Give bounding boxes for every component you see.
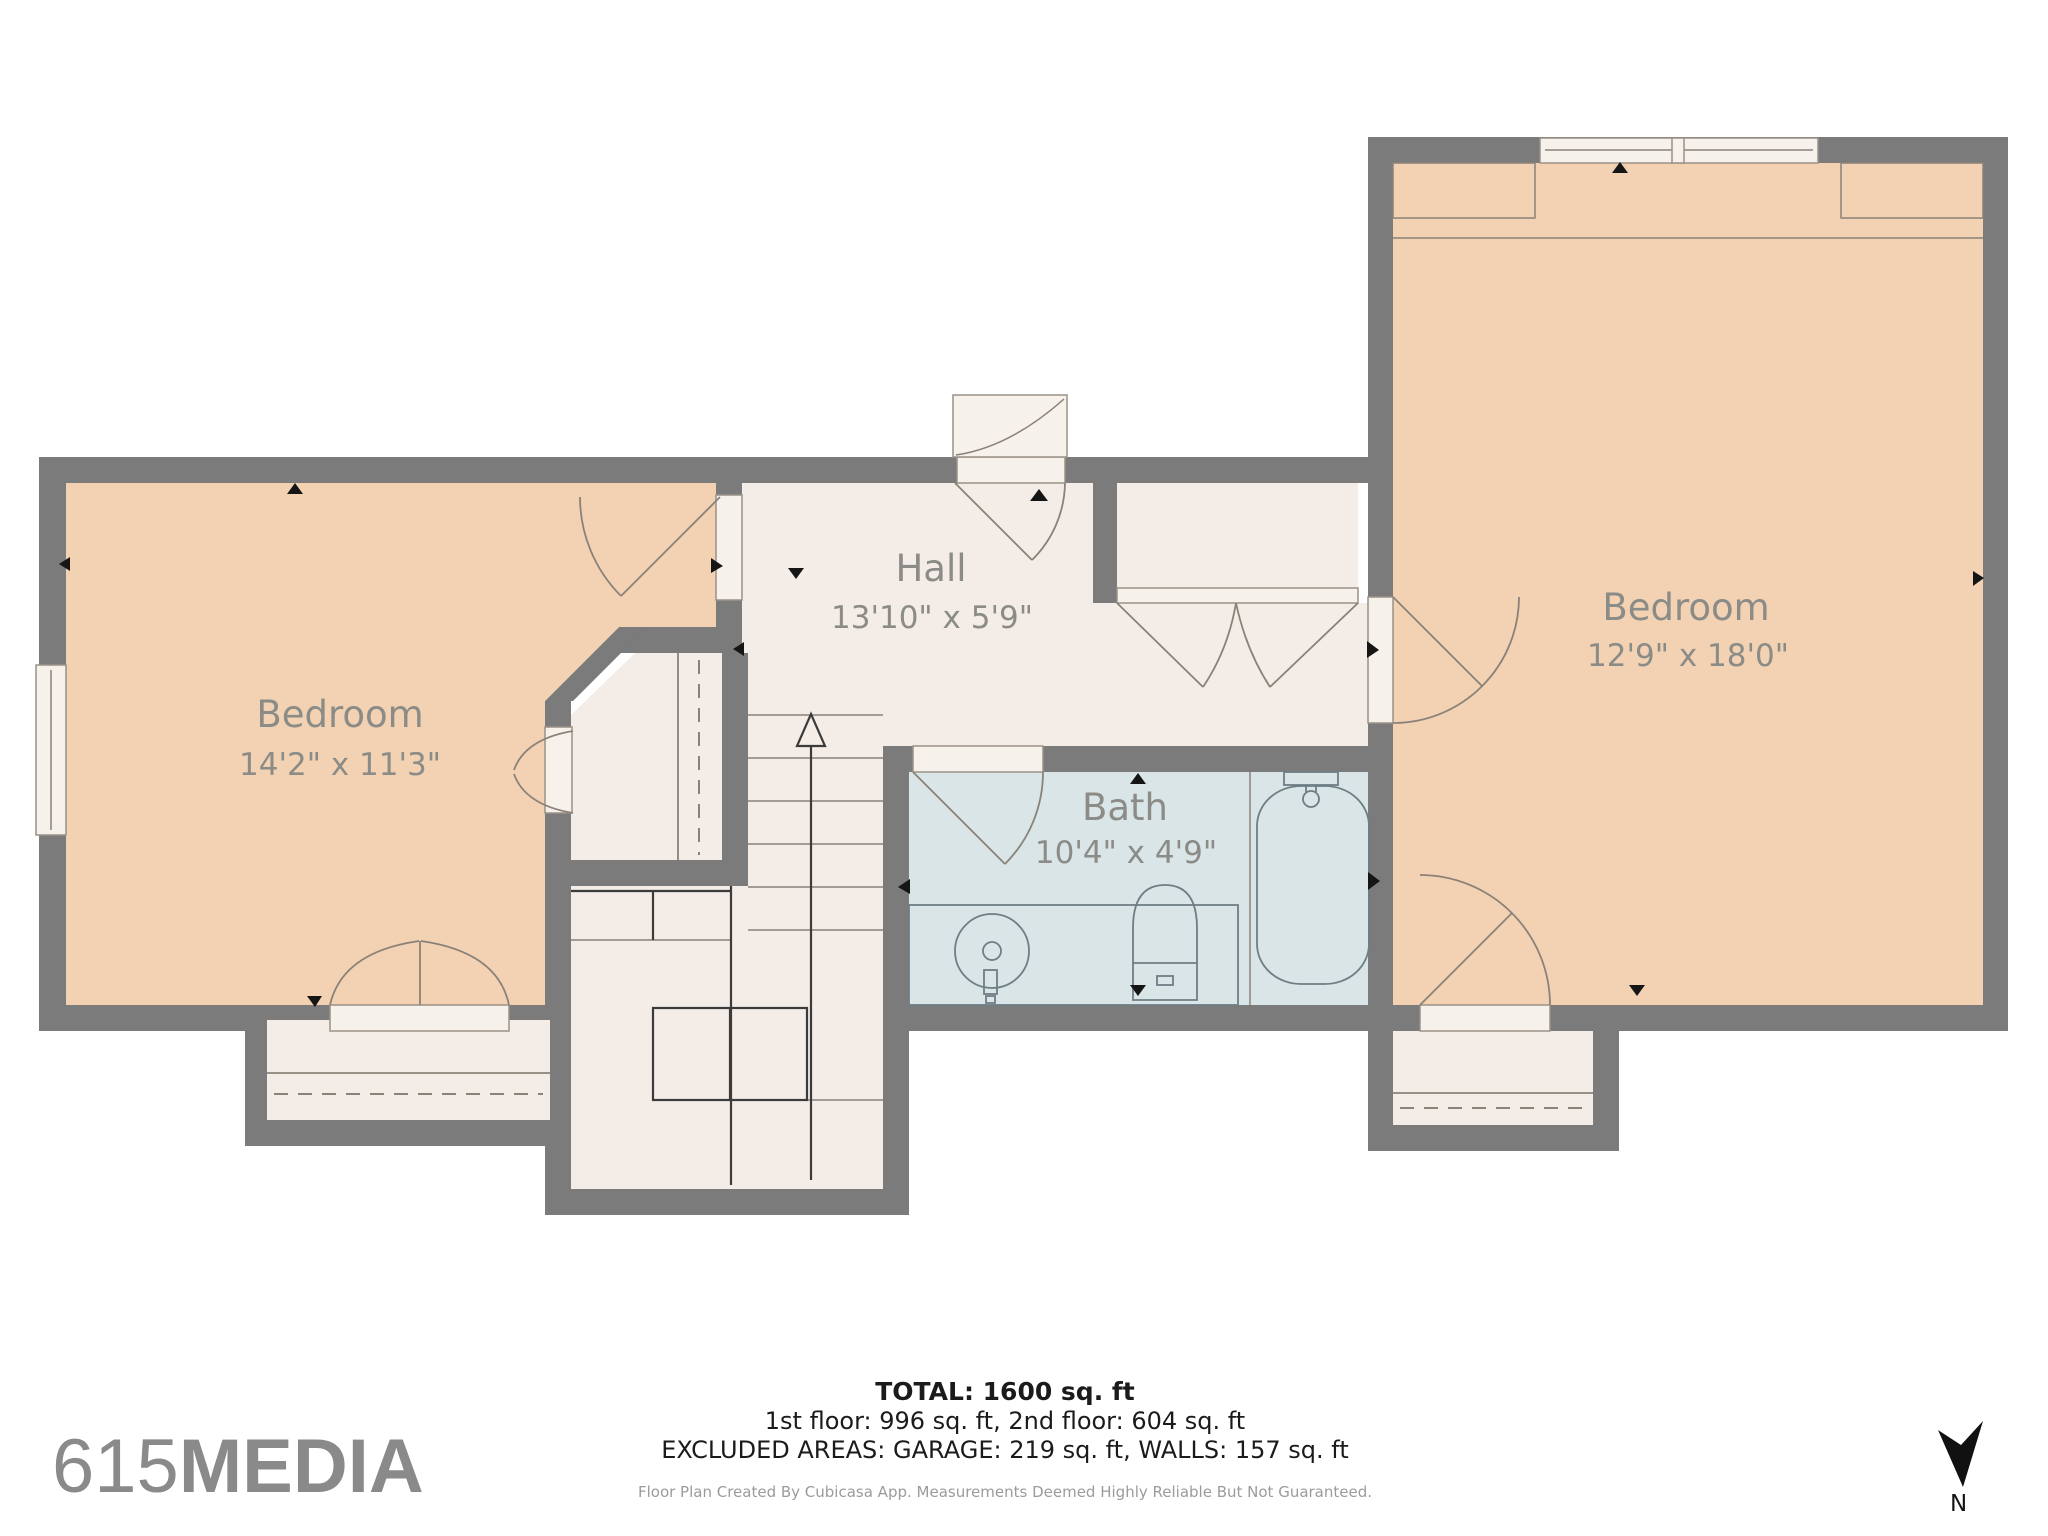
logo: 615MEDIA: [52, 1424, 424, 1509]
stair-upper-floor: [748, 746, 883, 886]
summary-block: TOTAL: 1600 sq. ft 1st floor: 996 sq. ft…: [638, 1377, 1372, 1501]
wall: [722, 653, 748, 886]
room-label-right-bedroom: Bedroom: [1602, 586, 1769, 629]
hall-closet-shelf: [1117, 588, 1358, 603]
compass-north-icon: [1938, 1421, 1983, 1487]
room-dims-left-bedroom: 14'2" x 11'3": [239, 747, 441, 783]
floor-plan-svg: Hall 13'10" x 5'9" Bedroom 14'2" x 11'3"…: [0, 0, 2048, 1536]
summary-floors: 1st floor: 996 sq. ft, 2nd floor: 604 sq…: [765, 1407, 1245, 1435]
room-dims-bath: 10'4" x 4'9": [1035, 835, 1217, 871]
compass: N: [1938, 1421, 1983, 1517]
room-dims-hall: 13'10" x 5'9": [831, 600, 1033, 636]
bath-door-threshold: [913, 746, 1043, 772]
logo-suffix: MEDIA: [179, 1424, 424, 1509]
top-window-divider: [1672, 138, 1684, 163]
wall: [1093, 483, 1117, 603]
summary-excluded: EXCLUDED AREAS: GARAGE: 219 sq. ft, WALL…: [661, 1436, 1348, 1464]
wall: [245, 1120, 568, 1146]
hall-closet-floor: [1117, 483, 1358, 588]
wall: [883, 746, 909, 1215]
wall: [1368, 1125, 1619, 1151]
summary-total: TOTAL: 1600 sq. ft: [875, 1377, 1135, 1406]
left-closet-threshold: [330, 1005, 509, 1031]
left-closet-floor: [267, 1020, 550, 1120]
right-closet-threshold: [1420, 1005, 1550, 1031]
hall-exterior-door-swing: [953, 395, 1067, 457]
wall: [545, 1189, 909, 1215]
right-closet-floor: [1393, 1031, 1593, 1125]
hall-door-threshold: [957, 457, 1065, 483]
wall: [545, 860, 748, 886]
wall: [1983, 137, 2008, 1031]
right-bedroom-floor: [1393, 163, 1983, 1005]
wall: [1593, 1031, 1619, 1151]
room-dims-right-bedroom: 12'9" x 18'0": [1587, 638, 1789, 674]
room-label-left-bedroom: Bedroom: [256, 693, 423, 736]
stairwell-floor: [571, 886, 883, 1189]
right-bedroom-door-threshold: [1368, 597, 1393, 723]
logo-prefix: 615: [52, 1424, 179, 1509]
summary-disclaimer: Floor Plan Created By Cubicasa App. Meas…: [638, 1483, 1372, 1501]
room-floors: [66, 163, 1983, 1189]
room-label-bath: Bath: [1082, 786, 1168, 829]
compass-label: N: [1950, 1491, 1967, 1517]
floor-plan-page: Hall 13'10" x 5'9" Bedroom 14'2" x 11'3"…: [0, 0, 2048, 1536]
room-label-hall: Hall: [895, 547, 966, 590]
middle-closet-threshold: [545, 727, 572, 813]
wall: [1368, 137, 1393, 1031]
left-bedroom-door-threshold: [716, 495, 742, 600]
